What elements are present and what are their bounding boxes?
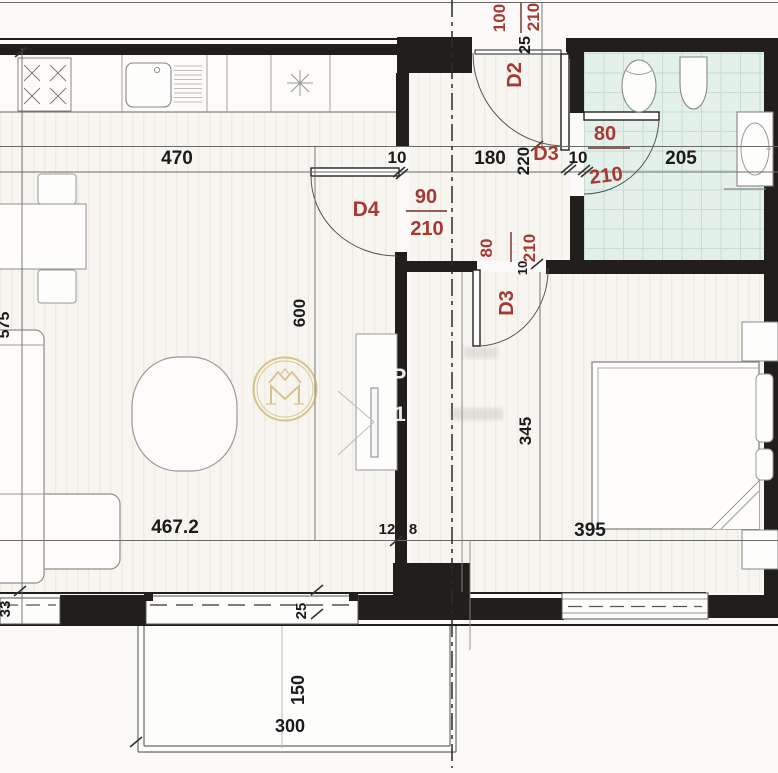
svg-text:220: 220 xyxy=(514,147,533,175)
svg-text:D3: D3 xyxy=(533,143,559,165)
svg-text:467.2: 467.2 xyxy=(151,517,199,538)
svg-text:80: 80 xyxy=(477,239,496,258)
svg-text:D2: D2 xyxy=(504,62,526,88)
svg-text:90: 90 xyxy=(415,186,437,208)
svg-text:25: 25 xyxy=(293,603,310,620)
svg-text:600: 600 xyxy=(290,299,309,327)
svg-text:D4: D4 xyxy=(353,198,380,221)
svg-text:8: 8 xyxy=(409,521,417,538)
svg-text:150: 150 xyxy=(288,675,308,705)
svg-text:1: 1 xyxy=(394,403,406,426)
svg-text:10: 10 xyxy=(388,148,407,167)
svg-text:205: 205 xyxy=(665,148,697,169)
svg-text:210: 210 xyxy=(588,163,624,189)
svg-text:12: 12 xyxy=(379,521,396,538)
svg-text:P: P xyxy=(392,364,407,389)
svg-text:25: 25 xyxy=(517,36,534,54)
svg-text:10: 10 xyxy=(569,148,588,167)
svg-text:180: 180 xyxy=(474,148,506,169)
svg-text:100: 100 xyxy=(490,4,509,32)
svg-text:33: 33 xyxy=(0,601,14,618)
svg-text:80: 80 xyxy=(594,123,616,145)
svg-text:D3: D3 xyxy=(496,290,518,316)
svg-text:470: 470 xyxy=(161,148,193,169)
svg-text:210: 210 xyxy=(524,3,543,31)
svg-text:210: 210 xyxy=(410,218,443,240)
svg-text:345: 345 xyxy=(516,417,535,445)
svg-text:575: 575 xyxy=(0,312,13,339)
svg-text:210: 210 xyxy=(520,234,539,262)
svg-text:395: 395 xyxy=(574,520,606,541)
svg-text:300: 300 xyxy=(275,716,305,736)
